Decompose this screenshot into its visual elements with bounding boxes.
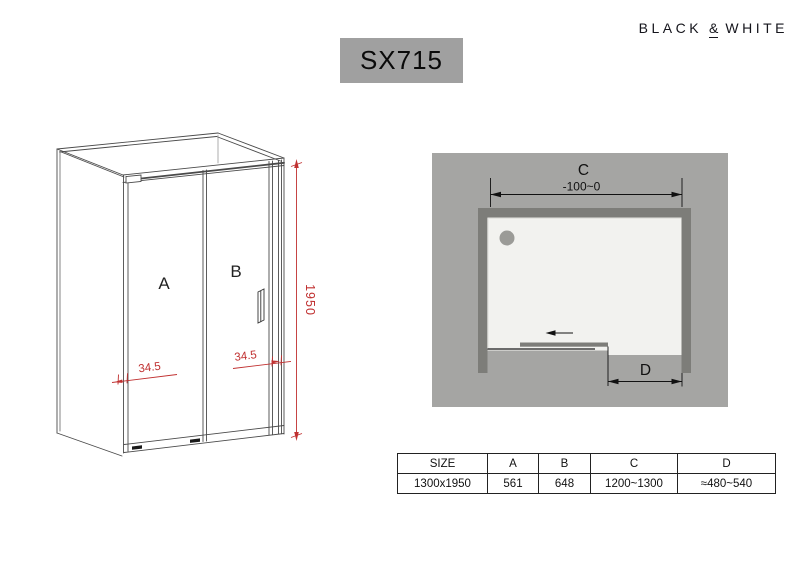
top-plan-view: C -100~0 D	[432, 153, 728, 407]
right-wall	[682, 208, 692, 373]
col-header-c: C	[591, 454, 678, 474]
roller-guide	[132, 445, 142, 450]
drain	[500, 231, 515, 246]
back-wall	[478, 208, 691, 218]
shower-tray-step	[608, 348, 682, 355]
value-c: 1200~1300	[591, 474, 678, 494]
col-header-size: SIZE	[398, 454, 488, 474]
height-dim-value: 1950	[303, 284, 317, 316]
left-frame-profile	[124, 175, 129, 453]
c-dim-range: -100~0	[563, 180, 601, 194]
door-divider	[203, 170, 207, 442]
spec-sheet-page: BLACK & WHITE SX715	[0, 0, 800, 565]
left-profile-dim-value: 34.5	[138, 361, 162, 376]
spec-table-header-row: SIZE A B C D	[398, 454, 776, 474]
col-header-a: A	[488, 454, 539, 474]
col-header-d: D	[678, 454, 776, 474]
brand-name-right: WHITE	[725, 20, 788, 36]
d-dim-label: D	[640, 362, 651, 379]
brand-ampersand: &	[709, 20, 718, 38]
value-size: 1300x1950	[398, 474, 488, 494]
right-frame-profile	[269, 158, 284, 435]
enclosure-outline	[57, 133, 284, 456]
panel-a-label: A	[158, 274, 170, 293]
model-badge: SX715	[340, 38, 463, 83]
spec-table: SIZE A B C D 1300x1950 561 648 1200~1300…	[397, 453, 776, 494]
col-header-b: B	[539, 454, 591, 474]
value-d: ≈480~540	[678, 474, 776, 494]
model-label: SX715	[360, 45, 443, 76]
value-b: 648	[539, 474, 591, 494]
right-profile-dim-value: 34.5	[234, 349, 258, 364]
value-a: 561	[488, 474, 539, 494]
left-side-panel	[57, 149, 122, 456]
brand-name-left: BLACK	[639, 20, 702, 36]
top-rail	[123, 158, 284, 183]
front-view-drawing: A B 1950 34.5 34.5	[40, 125, 320, 475]
fixed-panel-line	[520, 343, 608, 347]
c-dim-label: C	[578, 162, 589, 179]
bottom-rail	[124, 426, 284, 453]
dimension-lines: 1950 34.5 34.5	[112, 159, 317, 441]
brand-logo: BLACK & WHITE	[639, 20, 788, 38]
roller-guide	[190, 438, 200, 443]
shower-tray	[488, 218, 682, 351]
left-wall	[478, 208, 488, 373]
panel-b-label: B	[230, 262, 241, 281]
spec-table-value-row: 1300x1950 561 648 1200~1300 ≈480~540	[398, 474, 776, 494]
door-handle	[258, 289, 264, 323]
